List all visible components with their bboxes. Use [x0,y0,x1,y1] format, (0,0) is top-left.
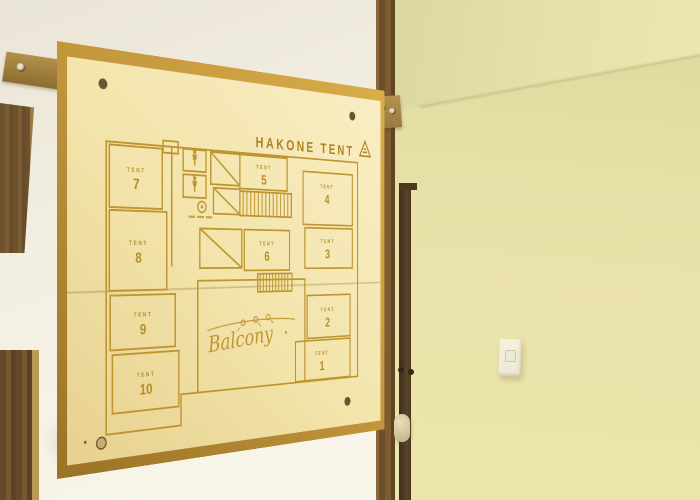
tent7-number: 7 [133,177,140,194]
tent6-word: TENT [259,242,274,248]
tent7-word: TENT [127,167,146,174]
tent3-word: TENT [321,239,335,244]
tent2-number: 2 [325,316,330,330]
tent1-number: 1 [320,359,325,373]
screw-head [97,437,107,450]
hallway-photo-scene: HAKONE TENT [0,0,700,500]
screw-icon [389,107,396,114]
door-knob [394,414,410,442]
door-frame-edge [399,183,411,500]
tent8-number: 8 [135,251,142,267]
light-switch [498,339,521,377]
tent9-word: TENT [134,312,153,319]
tent8-word: TENT [129,241,148,247]
hinge-bolt [408,369,414,375]
tent5-word: TENT [256,165,272,172]
wood-trim-bottom-left [0,350,39,500]
sign-face-svg: HAKONE TENT [57,41,385,479]
screw-icon [16,62,26,72]
sign-face [67,56,380,465]
tent9-number: 9 [140,322,146,338]
tent5-number: 5 [261,173,266,188]
tent2-word: TENT [321,307,335,313]
tent10-number: 10 [140,381,153,398]
switch-button [505,350,516,362]
tent4-word: TENT [320,185,334,191]
tent6-number: 6 [264,250,269,265]
hinge-bolt [398,367,404,373]
tent4-number: 4 [325,193,330,207]
door-frame-top [399,183,417,190]
floor-plan-sign: HAKONE TENT [57,41,385,479]
tent3-number: 3 [325,248,330,262]
